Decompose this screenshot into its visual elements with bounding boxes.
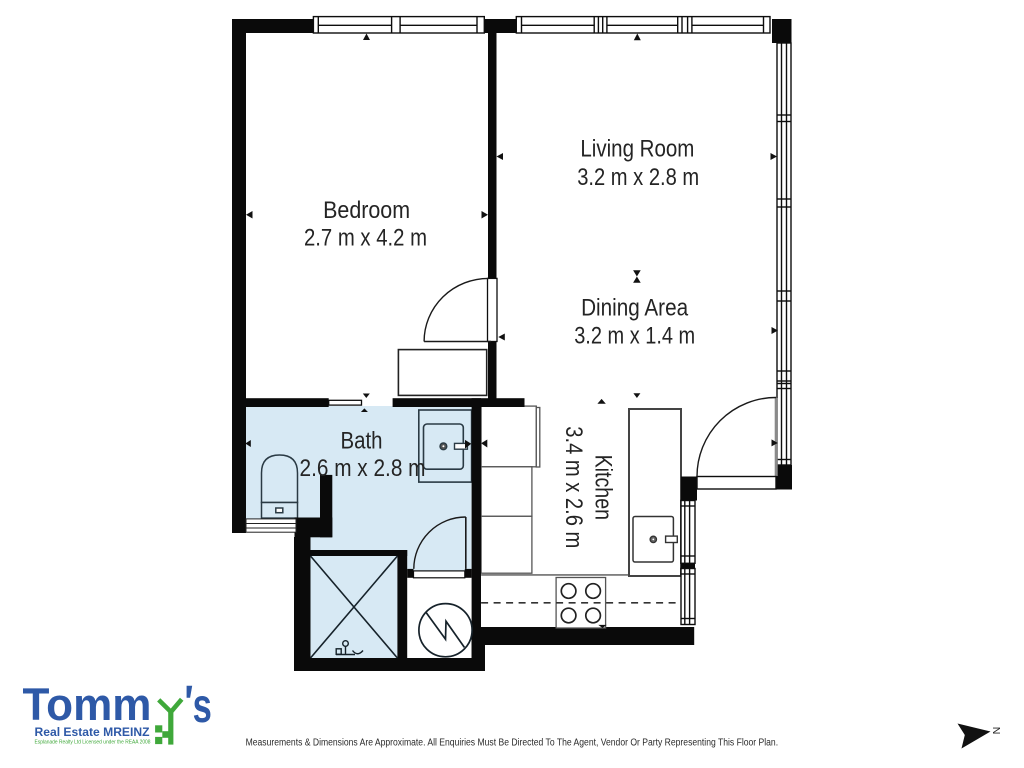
svg-text:Tomm: Tomm: [23, 679, 152, 730]
svg-text:s: s: [193, 678, 212, 732]
svg-text:Esplanade Realty Ltd Licensed: Esplanade Realty Ltd Licensed under the …: [35, 740, 151, 746]
svg-text:3.2 m x 1.4 m: 3.2 m x 1.4 m: [574, 323, 695, 350]
svg-text:Bath: Bath: [341, 428, 383, 455]
svg-text:3.4 m x 2.6 m: 3.4 m x 2.6 m: [560, 426, 587, 548]
svg-text:Measurements & Dimensions Are: Measurements & Dimensions Are Approximat…: [246, 737, 779, 748]
svg-text:Real Estate MREINZ: Real Estate MREINZ: [35, 725, 150, 739]
svg-text:2.7 m x 4.2 m: 2.7 m x 4.2 m: [304, 224, 427, 251]
svg-text:Kitchen: Kitchen: [590, 455, 617, 520]
svg-text:Living Room: Living Room: [580, 135, 694, 162]
svg-text:Dining Area: Dining Area: [581, 295, 689, 322]
svg-text:3.2 m x 2.8 m: 3.2 m x 2.8 m: [577, 164, 699, 191]
svg-text:2.6 m x 2.8 m: 2.6 m x 2.8 m: [300, 455, 426, 482]
svg-text:Bedroom: Bedroom: [323, 197, 410, 224]
svg-text:N: N: [990, 727, 1002, 735]
